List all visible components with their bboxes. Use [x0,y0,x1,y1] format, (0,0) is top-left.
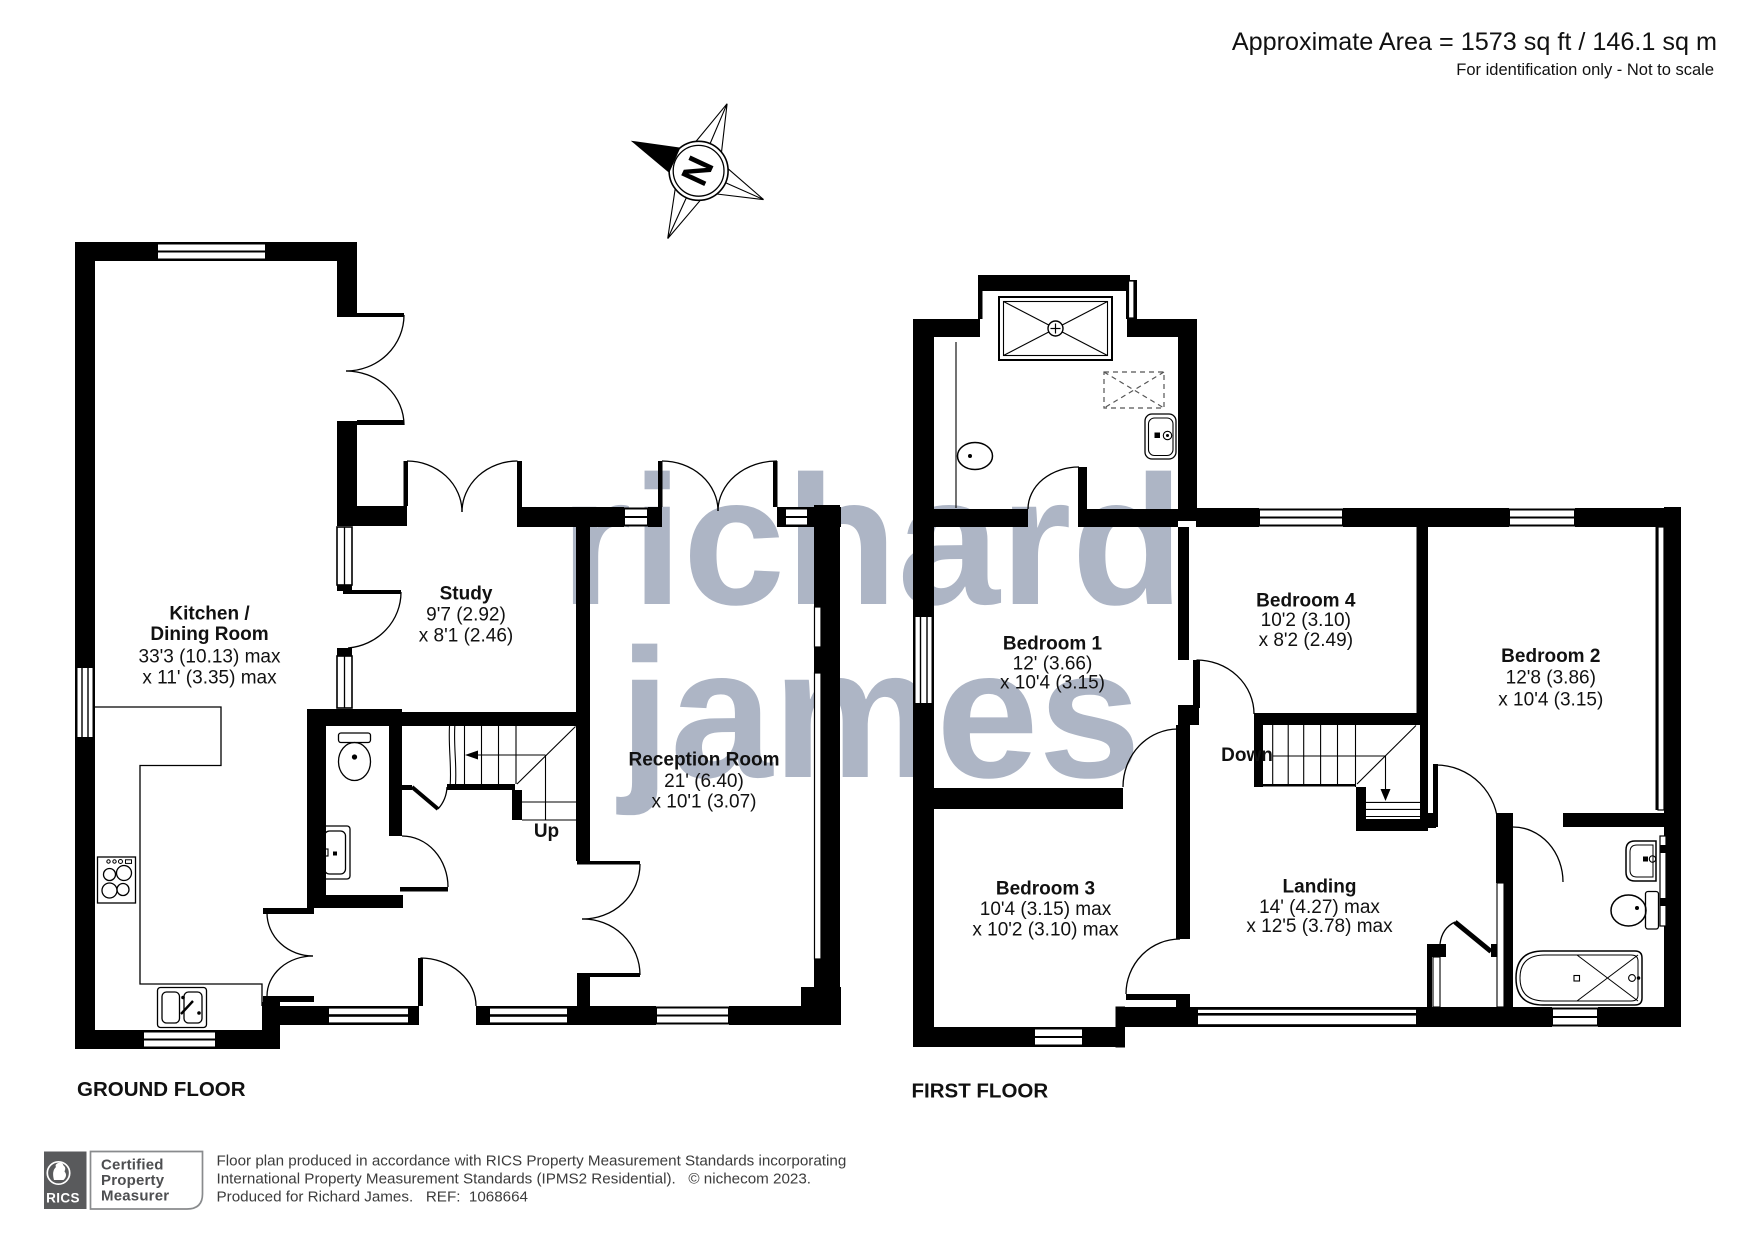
svg-text:RICS: RICS [46,1191,80,1206]
svg-text:Bedroom 1: Bedroom 1 [1003,634,1103,655]
svg-text:Bedroom 2: Bedroom 2 [1501,646,1600,667]
svg-text:x 12'5 (3.78) max: x 12'5 (3.78) max [1246,916,1393,937]
svg-text:FIRST FLOOR: FIRST FLOOR [912,1080,1049,1103]
svg-text:Bedroom 4: Bedroom 4 [1256,591,1356,612]
svg-text:x 8'2 (2.49): x 8'2 (2.49) [1259,630,1353,651]
svg-text:x 10'1 (3.07): x 10'1 (3.07) [651,792,756,813]
svg-text:10'4 (3.15) max: 10'4 (3.15) max [980,899,1112,920]
svg-text:Measurer: Measurer [101,1188,169,1205]
svg-text:Up: Up [534,821,559,842]
svg-text:Floor plan produced in accorda: Floor plan produced in accordance with R… [217,1153,847,1170]
svg-text:Dining Room: Dining Room [150,624,268,645]
svg-text:x 10'4 (3.15): x 10'4 (3.15) [1498,690,1603,711]
svg-text:Property: Property [101,1172,165,1189]
svg-text:33'3 (10.13) max: 33'3 (10.13) max [139,647,281,668]
svg-text:Bedroom 3: Bedroom 3 [996,879,1095,900]
svg-text:Produced for Richard James.: Produced for Richard James. REF: 1068664 [217,1188,529,1205]
svg-text:GROUND FLOOR: GROUND FLOOR [77,1078,246,1101]
svg-text:Reception Room: Reception Room [629,750,780,771]
svg-text:x 10'4 (3.15): x 10'4 (3.15) [1000,673,1105,694]
svg-text:10'2 (3.10): 10'2 (3.10) [1261,610,1351,631]
svg-text:9'7 (2.92): 9'7 (2.92) [426,605,506,626]
svg-text:Landing: Landing [1283,877,1357,898]
svg-text:21' (6.40): 21' (6.40) [664,771,744,792]
svg-text:International Property Measure: International Property Measurement Stand… [217,1171,812,1188]
svg-text:14' (4.27) max: 14' (4.27) max [1259,897,1380,918]
svg-text:For identification only - Not: For identification only - Not to scale [1456,61,1714,79]
svg-text:12'8 (3.86): 12'8 (3.86) [1506,668,1596,689]
svg-text:Study: Study [440,584,493,605]
svg-text:Kitchen /: Kitchen / [169,604,250,625]
svg-text:Approximate Area = 1573 sq ft: Approximate Area = 1573 sq ft / 146.1 sq… [1232,28,1717,56]
svg-text:x 8'1 (2.46): x 8'1 (2.46) [419,626,513,647]
svg-text:x 10'2 (3.10) max: x 10'2 (3.10) max [972,920,1119,941]
svg-text:Certified: Certified [101,1157,164,1174]
svg-text:Down: Down [1221,745,1273,766]
svg-text:x 11' (3.35) max: x 11' (3.35) max [142,668,277,689]
svg-text:12' (3.66): 12' (3.66) [1013,654,1093,675]
